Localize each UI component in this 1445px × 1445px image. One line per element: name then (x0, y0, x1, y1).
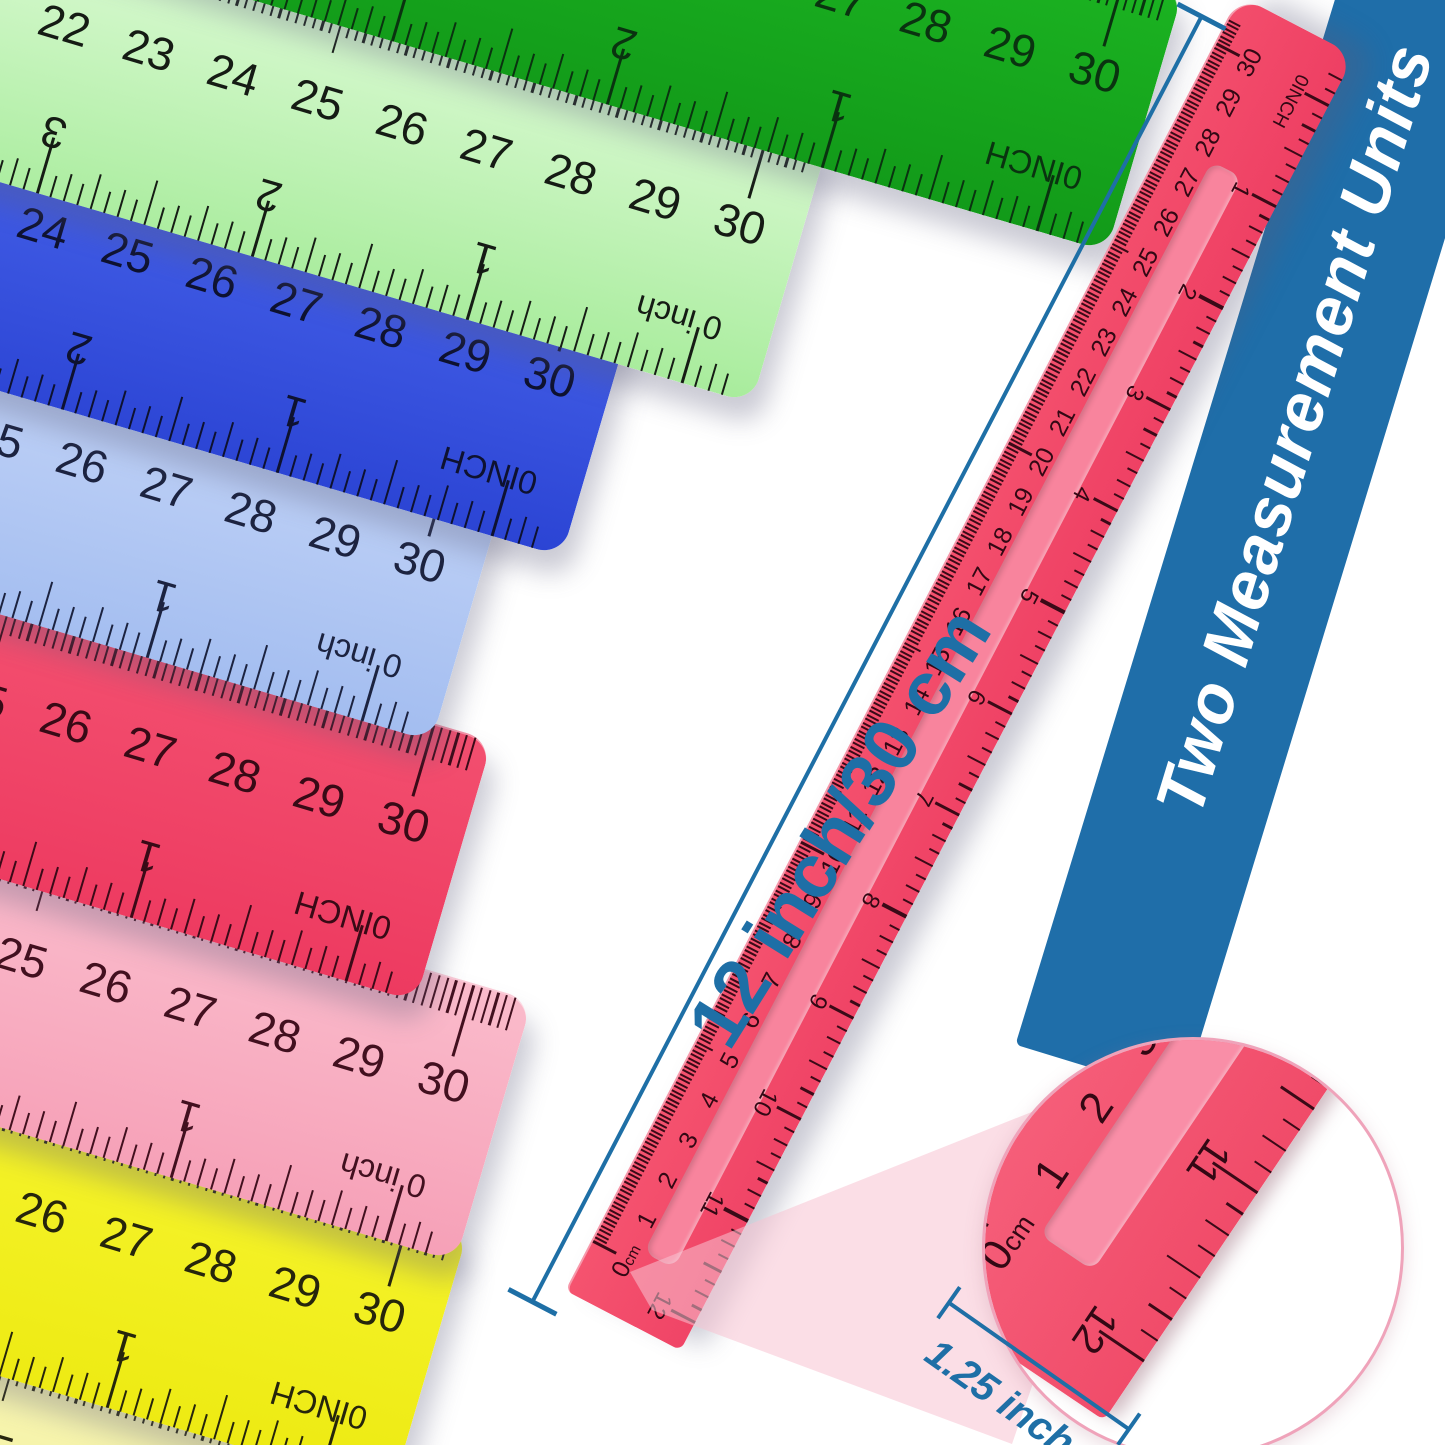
inch-tick (879, 935, 893, 944)
inch-tick (209, 431, 217, 453)
inch-tick (47, 384, 55, 406)
cm-number: 26 (11, 1183, 73, 1242)
inch-tick (619, 87, 627, 109)
inch-tick (0, 368, 2, 390)
inch-tick (277, 1165, 292, 1210)
inch-tick (0, 593, 6, 615)
inch-tick (902, 898, 913, 905)
inch-tick (517, 517, 527, 544)
inch-tick (371, 962, 381, 989)
inch-tick (1251, 193, 1276, 208)
inch-tick (829, 1004, 854, 1019)
inch-tick (182, 424, 190, 446)
inch-tick (65, 1374, 73, 1396)
inch-tick (1325, 87, 1336, 94)
inch-tick (210, 1168, 218, 1190)
inch-tick (848, 148, 858, 175)
inch-tick (756, 1161, 775, 1172)
inch-tick (968, 190, 976, 212)
inch-tick (89, 884, 97, 906)
inch-tick (173, 638, 183, 665)
inch-tick (967, 755, 986, 766)
inch-tick (958, 783, 972, 792)
inch-tick (1275, 174, 1289, 183)
inch-tick (277, 940, 285, 962)
inch-zero-label: 0INCH (437, 441, 541, 501)
inch-tick (1198, 294, 1223, 309)
inch-tick (955, 180, 965, 207)
inch-tick (284, 0, 299, 10)
inch-tick (329, 454, 341, 489)
cm-number: 21 (0, 0, 11, 30)
inch-tick (65, 607, 75, 634)
product-image-stage: 1314151617181920212223242526272829301234… (0, 0, 1445, 1445)
magnifier-circle: 0cm123456789101112 (982, 1037, 1404, 1445)
inch-tick (546, 316, 556, 343)
inch-tick (331, 253, 341, 280)
inch-tick (197, 1158, 207, 1185)
inch-tick (450, 503, 458, 525)
inch-tick (331, 1190, 343, 1225)
inch-tick (613, 342, 621, 364)
inch-zero-label: 0 inch (336, 1148, 430, 1205)
inch-tick (707, 364, 717, 391)
inch-tick (347, 696, 355, 718)
cm-number: 28 (350, 298, 412, 357)
inch-tick (1064, 580, 1078, 589)
inch-tick (587, 334, 595, 356)
inch-tick (1285, 163, 1296, 170)
inch-tick (11, 591, 21, 618)
cm-number: 25 (0, 408, 29, 467)
inch-tick (727, 119, 735, 141)
inch-tick (425, 286, 433, 308)
cm-number: 30 (373, 793, 435, 852)
inch-tick (183, 1160, 191, 1182)
inch-tick (985, 732, 999, 741)
inch-tick (155, 416, 163, 438)
inch-tick (383, 460, 398, 505)
inch-tick (1298, 138, 1309, 145)
inch-tick (211, 223, 219, 245)
inch-tick (810, 1076, 821, 1083)
inch-tick (38, 582, 53, 627)
cm-tick (1156, 0, 1168, 21)
inch-number: 1 (466, 233, 502, 282)
inch-tick (39, 1366, 47, 1388)
inch-tick (982, 746, 993, 753)
inch-tick (399, 278, 407, 300)
inch-tick (721, 373, 729, 395)
inch-tick (1034, 645, 1045, 652)
cm-number: 25 (0, 928, 53, 987)
inch-tick (410, 485, 420, 512)
inch-tick (130, 199, 138, 221)
inch-tick (345, 263, 353, 285)
inch-tick (1166, 391, 1177, 398)
inch-tick (186, 648, 194, 670)
inch-tick (316, 463, 324, 485)
inch-tick (1062, 212, 1072, 239)
cm-number: 25 (97, 223, 159, 282)
inch-tick (143, 180, 158, 225)
inch-tick (691, 1304, 702, 1311)
inch-tick (667, 358, 675, 380)
inch-tick (560, 326, 568, 348)
inch-tick (1167, 1254, 1201, 1278)
inch-tick (731, 1228, 742, 1235)
inch-tick (1262, 1134, 1286, 1151)
inch-tick (1249, 225, 1263, 234)
inch-tick (9, 1095, 21, 1130)
inch-tick (310, 0, 320, 18)
inch-tick (195, 422, 205, 449)
inch-tick (170, 206, 180, 233)
inch-tick (1311, 1075, 1329, 1088)
inch-tick (539, 63, 547, 85)
inch-tick (1020, 653, 1039, 664)
cm-tick (982, 1170, 985, 1185)
inch-tick (344, 1208, 352, 1230)
inch-tick (156, 1152, 164, 1174)
cm-number: 29 (979, 18, 1041, 77)
cm-number: 29 (328, 1028, 390, 1087)
inch-tick (398, 1223, 406, 1245)
cm-number: 28 (204, 743, 266, 802)
cm-number: 29 (304, 508, 366, 567)
inch-tick (23, 168, 31, 190)
inch-tick (506, 310, 514, 332)
inch-zero-label: 0 inch (632, 290, 726, 347)
inch-tick (280, 670, 290, 697)
inch-tick (431, 32, 439, 54)
inch-tick (592, 79, 600, 101)
inch-tick (916, 873, 927, 880)
inch-tick (1061, 594, 1072, 601)
inch-tick (1141, 1328, 1159, 1341)
cm-number: 25 (287, 70, 349, 129)
cm-number: 28 (244, 1003, 306, 1062)
inch-tick (995, 198, 1003, 220)
inch-tick (512, 55, 520, 77)
inch-tick (850, 1000, 861, 1007)
inch-tick (915, 174, 923, 196)
inch-tick (794, 133, 804, 160)
inch-tick (1219, 290, 1230, 297)
inch-tick (264, 930, 274, 957)
cm-number: 22 (33, 0, 95, 54)
inch-tick (1280, 1085, 1314, 1109)
inch-tick (774, 1137, 788, 1146)
inch-tick (223, 1159, 235, 1194)
inch-tick (79, 616, 87, 638)
cm-tick (505, 997, 517, 1030)
cm-number: 27 (136, 458, 198, 517)
inch-tick (703, 1262, 722, 1273)
inch-tick (1178, 349, 1197, 360)
inch-tick (168, 397, 183, 442)
inch-tick (305, 237, 317, 272)
inch-tick (888, 166, 896, 188)
inch-tick (264, 239, 272, 261)
inch-tick (458, 39, 466, 61)
inch-tick (351, 8, 359, 30)
inch-tick (297, 0, 305, 14)
inch-tick (35, 1111, 45, 1138)
inch-tick (289, 455, 297, 477)
inch-tick (128, 408, 136, 430)
inch-tick (1048, 620, 1059, 627)
inch-tick (472, 38, 482, 65)
inch-tick (226, 654, 236, 681)
inch-tick (747, 1188, 761, 1197)
inch-tick (531, 526, 539, 548)
inch-tick (117, 190, 127, 217)
cm-unit-label: cm (995, 1209, 1041, 1256)
inch-tick (861, 158, 869, 180)
inch-tick (141, 406, 151, 433)
inch-tick (780, 134, 788, 156)
cm-number: 27 (811, 0, 873, 27)
inch-tick (183, 899, 195, 934)
inch-tick (103, 191, 111, 213)
inch-tick (418, 22, 428, 49)
inch-tick (74, 392, 82, 414)
cm-tick (465, 737, 477, 770)
inch-tick (12, 1359, 20, 1381)
inch-tick (705, 1279, 716, 1286)
inch-tick (294, 1436, 304, 1445)
inch-tick (143, 1143, 153, 1170)
inch-tick (445, 22, 457, 57)
inch-tick (387, 702, 397, 729)
cm-number: 29 (264, 1258, 326, 1317)
inch-number: 2 (251, 170, 287, 219)
inch-tick (358, 244, 373, 289)
inch-tick (914, 856, 933, 867)
inch-tick (0, 1332, 13, 1377)
inch-tick (157, 898, 167, 925)
inch-tick (573, 307, 588, 352)
inch-tick (304, 948, 312, 970)
inch-tick (771, 1152, 782, 1159)
cm-number: 26 (371, 95, 433, 154)
cm-number: 26 (75, 953, 137, 1012)
inch-tick (498, 28, 513, 73)
inch-tick (371, 1216, 379, 1238)
dimension-cap-icon (1176, 2, 1226, 31)
inch-tick (1074, 569, 1085, 576)
inch-tick (552, 54, 564, 89)
inch-tick (21, 376, 29, 398)
inch-tick (262, 447, 270, 469)
cm-number: 30 (1064, 43, 1126, 102)
cm-tick (982, 1196, 989, 1227)
inch-tick (385, 269, 395, 296)
inch-tick (1196, 326, 1210, 335)
inch-tick (874, 149, 886, 184)
inch-tick (713, 92, 728, 137)
inch-tick (7, 359, 19, 394)
dimension-cap-icon (507, 1287, 557, 1316)
inch-tick (356, 469, 366, 496)
inch-tick (1254, 1160, 1272, 1173)
inch-tick (934, 801, 959, 816)
cm-number: 30 (519, 348, 581, 407)
inch-tick (1146, 396, 1171, 411)
inch-tick (170, 908, 178, 930)
inch-tick (876, 949, 887, 956)
inch-tick (995, 721, 1006, 728)
cm-number: 27 (96, 1208, 158, 1267)
inch-tick (270, 0, 278, 6)
inch-tick (240, 664, 248, 686)
inch-tick (767, 117, 779, 152)
inch-tick (928, 155, 943, 200)
cm-number: 23 (118, 21, 180, 80)
inch-tick (955, 797, 966, 804)
inch-tick (267, 1420, 279, 1445)
inch-tick (686, 101, 696, 128)
inch-number: 1 (130, 831, 166, 880)
inch-tick (412, 269, 424, 304)
inch-tick (968, 772, 979, 779)
inch-tick (1021, 670, 1032, 677)
inch-tick (889, 924, 900, 931)
inch-tick (0, 1105, 3, 1127)
inch-tick (224, 221, 234, 248)
inch-zero-label: 0 inch (312, 628, 406, 685)
inch-tick (862, 958, 881, 969)
cm-number: 26 (51, 433, 113, 492)
inch-tick (143, 900, 151, 922)
inch-tick (304, 1190, 314, 1217)
inch-tick (101, 400, 109, 422)
inch-tick (1205, 1218, 1229, 1235)
inch-tick (1246, 239, 1257, 246)
inch-tick (92, 607, 104, 642)
inch-tick (411, 1222, 421, 1249)
inch-tick (224, 924, 232, 946)
inch-tick (249, 438, 259, 465)
inch-tick (116, 892, 124, 914)
inch-tick (119, 623, 129, 650)
inch-tick (1272, 189, 1283, 196)
inch-tick (837, 1025, 848, 1032)
inch-number: 12 (1064, 1299, 1125, 1361)
inch-tick (159, 1389, 171, 1424)
inch-tick (89, 1127, 99, 1154)
inch-tick (826, 1036, 840, 1045)
inch-tick (303, 453, 313, 480)
inch-tick (942, 182, 950, 204)
inch-tick (718, 1253, 729, 1260)
inch-tick (317, 1200, 325, 1222)
inch-tick (343, 471, 351, 493)
inch-tick (237, 231, 245, 253)
inch-tick (237, 1176, 245, 1198)
inch-tick (253, 645, 268, 690)
inch-tick (79, 1373, 89, 1400)
inch-tick (52, 609, 60, 631)
inch-zero-label: 0INCH (267, 1376, 371, 1436)
inch-tick (633, 85, 643, 112)
inch-tick (358, 963, 366, 985)
inch-tick (740, 117, 750, 144)
inch-number: 2 (606, 18, 642, 67)
inch-number: 12 (642, 1288, 676, 1323)
inch-tick (105, 624, 113, 646)
inch-tick (378, 16, 386, 38)
inch-tick (240, 1420, 250, 1445)
inch-tick (1193, 341, 1204, 348)
inch-tick (76, 184, 84, 206)
inch-tick (1301, 123, 1315, 132)
inch-number: 2 (61, 323, 97, 372)
inch-number: 3 (36, 107, 72, 156)
cm-number: 24 (12, 198, 74, 257)
inch-tick (640, 350, 648, 372)
inch-tick (863, 975, 874, 982)
inch-tick (1090, 529, 1104, 538)
inch-tick (358, 1206, 368, 1233)
inch-tick (723, 1207, 748, 1222)
inch-tick (477, 511, 485, 533)
inch-tick (809, 1059, 828, 1070)
inch-tick (1038, 630, 1052, 639)
inch-tick (173, 1406, 181, 1428)
inch-tick (654, 348, 664, 375)
inch-tick (754, 126, 762, 148)
inch-tick (1148, 1303, 1172, 1320)
inch-tick (88, 390, 98, 417)
inch-tick (504, 518, 512, 540)
inch-tick (401, 711, 409, 733)
cm-tick (451, 985, 475, 1057)
inch-tick (437, 485, 449, 520)
cm-tick (411, 725, 435, 797)
inch-tick (253, 1430, 261, 1445)
inch-number: 1 (170, 1091, 206, 1140)
inch-tick (278, 237, 288, 264)
inch-tick (157, 207, 165, 229)
inch-tick (372, 271, 380, 293)
inch-tick (213, 1395, 228, 1440)
cm-number: 0cm (982, 1202, 1042, 1277)
inch-tick (853, 985, 867, 994)
inch-tick (1087, 544, 1098, 551)
inch-tick (264, 1184, 272, 1206)
inch-tick (1049, 213, 1057, 235)
inch-tick (92, 1382, 100, 1404)
inch-tick (906, 884, 920, 893)
dimension-cap-icon (936, 1286, 961, 1319)
inch-tick (1319, 1050, 1343, 1067)
inch-tick (49, 867, 59, 894)
inch-tick (404, 24, 412, 46)
inch-tick (36, 869, 44, 891)
cm-number: 30 (709, 195, 771, 254)
inch-tick (222, 422, 234, 457)
inch-tick (797, 1101, 808, 1108)
inch-tick (103, 883, 113, 910)
inch-tick (1206, 315, 1217, 322)
inch-tick (237, 905, 252, 950)
inch-tick (337, 0, 349, 26)
inch-number: 1 (146, 571, 182, 620)
inch-tick (213, 656, 221, 678)
cm-number: 30 (413, 1053, 475, 1112)
